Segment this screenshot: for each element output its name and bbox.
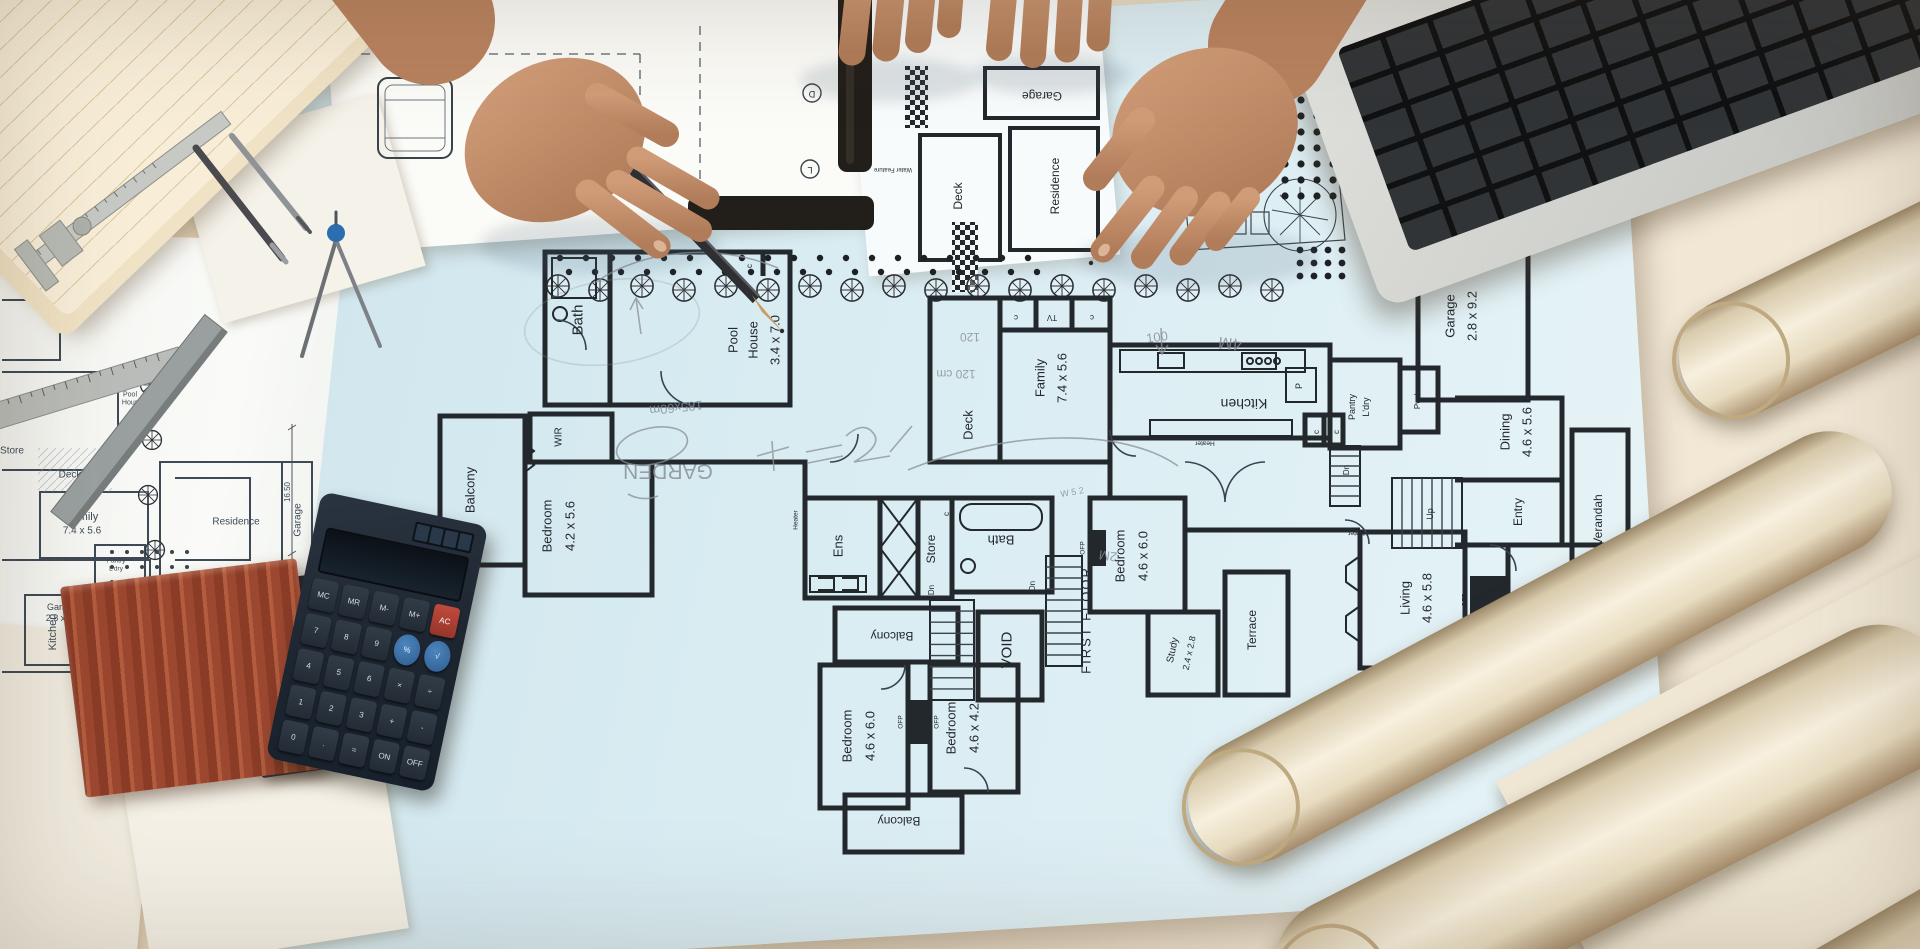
hand-right-holding-pencil [1084, 0, 1330, 259]
scale-ruler [51, 315, 228, 530]
pen [196, 148, 286, 262]
drafting-compass-icon [302, 212, 380, 356]
foreground-objects [0, 0, 1920, 949]
pen [232, 136, 310, 232]
vernier-caliper [15, 100, 244, 291]
photo-architects-blueprint-desk: MCMRM-M+AC789%√456×÷123+-0.=ONOFF [0, 0, 1920, 949]
hand-right-resting [999, 0, 1102, 55]
hand-left-holding-pencil [360, 0, 708, 255]
